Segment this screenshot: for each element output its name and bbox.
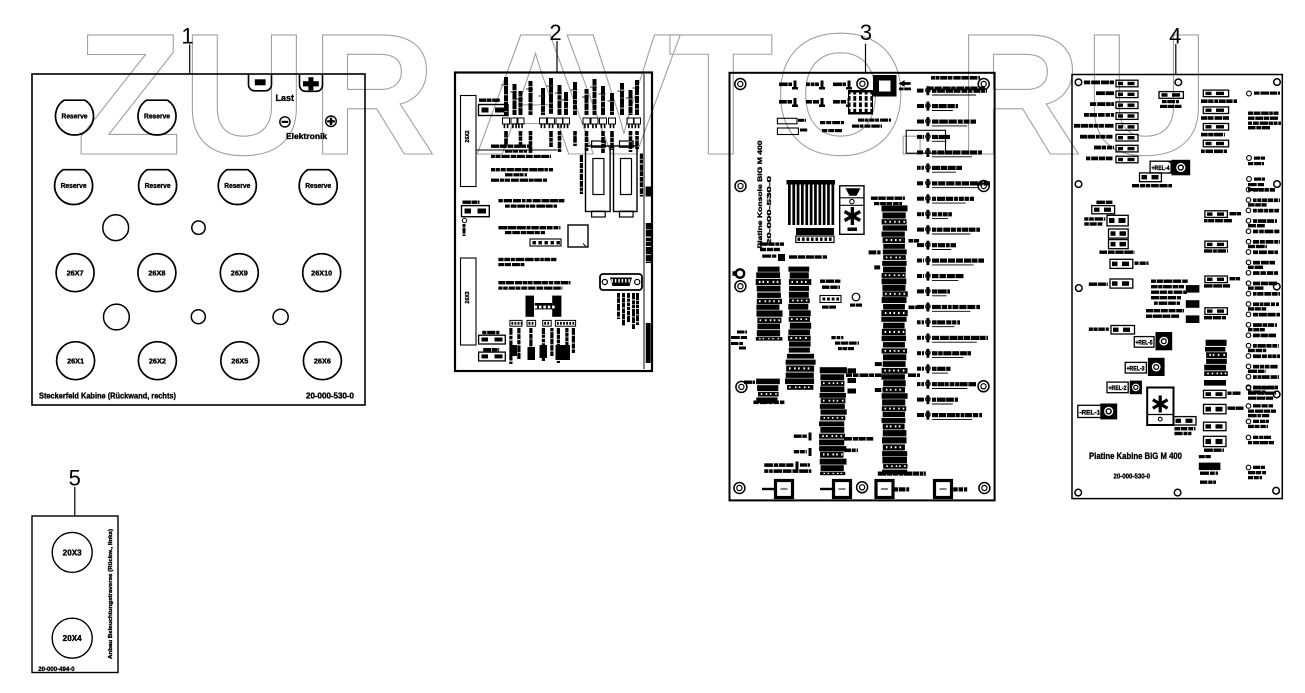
- svg-text:Platine Kabine BiG M 400: Platine Kabine BiG M 400: [1089, 451, 1182, 462]
- svg-text:Anbau Beleuchtungstraverse (Rü: Anbau Beleuchtungstraverse (Rückw., link…: [108, 529, 114, 659]
- svg-text:26X1: 26X1: [67, 356, 84, 365]
- svg-text:26X8: 26X8: [148, 268, 165, 277]
- svg-text:26X9: 26X9: [231, 268, 248, 277]
- svg-text:20X3: 20X3: [63, 548, 83, 557]
- svg-text:-REL-1: -REL-1: [1079, 409, 1100, 416]
- svg-text:+REL-4: +REL-4: [1152, 165, 1170, 172]
- svg-text:R: R: [311, 0, 436, 191]
- svg-text:Elektronik: Elektronik: [286, 131, 327, 141]
- svg-text:Reserve: Reserve: [305, 181, 331, 190]
- svg-text:20-000-530-0: 20-000-530-0: [306, 392, 354, 401]
- svg-text:26X3: 26X3: [465, 291, 471, 303]
- svg-text:Z: Z: [76, 0, 182, 191]
- svg-text:26X2: 26X2: [465, 130, 471, 142]
- svg-text:26X2: 26X2: [149, 356, 166, 365]
- svg-text:1: 1: [181, 24, 193, 49]
- svg-text:20-000-530-0: 20-000-530-0: [767, 176, 773, 245]
- svg-text:Reserve: Reserve: [144, 112, 170, 121]
- svg-text:Reserve: Reserve: [224, 181, 250, 190]
- svg-text:20-000-530-0: 20-000-530-0: [1114, 472, 1151, 481]
- svg-text:3: 3: [860, 20, 872, 45]
- svg-text:2: 2: [549, 20, 561, 45]
- svg-text:26X6: 26X6: [314, 356, 331, 365]
- svg-text:20X4: 20X4: [63, 634, 83, 643]
- svg-text:5: 5: [69, 466, 81, 491]
- svg-text:+REL-5: +REL-5: [1136, 340, 1153, 347]
- svg-text:+REL-2: +REL-2: [1109, 385, 1127, 392]
- svg-text:+REL-3: +REL-3: [1127, 365, 1145, 372]
- svg-text:Reserve: Reserve: [61, 181, 87, 190]
- svg-text:26X5: 26X5: [231, 356, 248, 365]
- svg-text:Platine Konsole BiG M 400: Platine Konsole BiG M 400: [757, 140, 764, 248]
- svg-text:Last: Last: [276, 93, 295, 103]
- svg-text:Steckerfeld Kabine (Rückwand,: Steckerfeld Kabine (Rückwand, rechts): [39, 392, 176, 401]
- svg-text:R: R: [957, 0, 1082, 191]
- svg-text:20-000-494-0: 20-000-494-0: [38, 666, 75, 673]
- svg-text:Reserve: Reserve: [62, 112, 88, 121]
- svg-text:.: .: [895, 46, 928, 180]
- svg-text:26X7: 26X7: [67, 268, 84, 277]
- svg-text:26X10: 26X10: [311, 268, 332, 277]
- svg-text:Reserve: Reserve: [145, 181, 171, 190]
